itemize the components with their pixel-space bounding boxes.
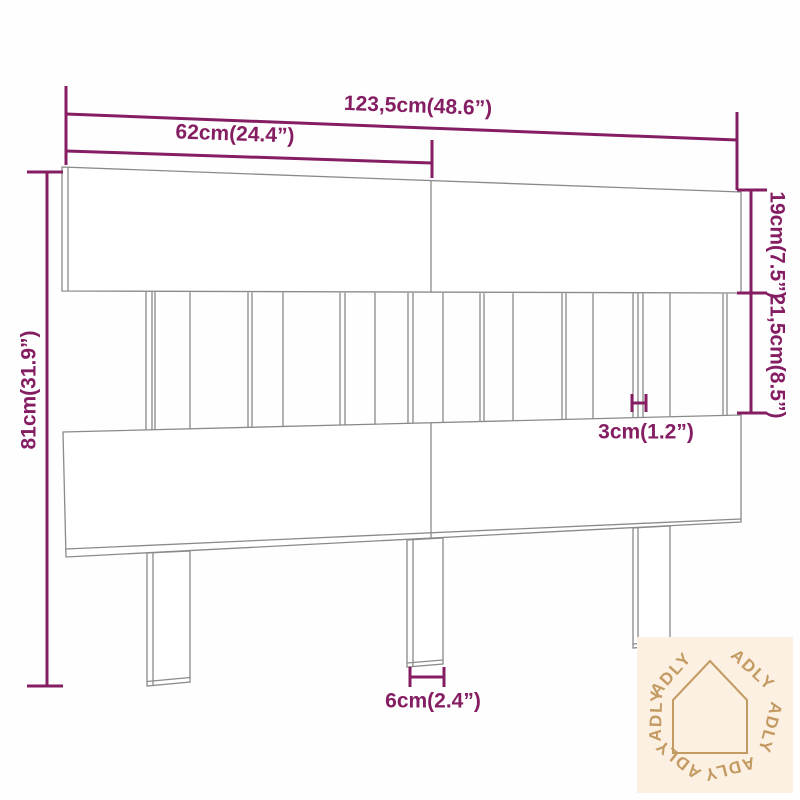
dimension-leg-width <box>410 667 444 687</box>
label-total-height: 81cm(31.9”) <box>19 330 40 449</box>
label-leg-width: 6cm(2.4”) <box>385 691 481 712</box>
headboard-dimension-diagram: 123,5cm(48.6”) 62cm(24.4”) 81cm(31.9”) 1… <box>0 0 800 800</box>
dimension-slat-width <box>632 394 646 412</box>
label-middle-section-height: 21,5cm(8.5”) <box>767 294 788 419</box>
headboard-line-drawing <box>0 0 800 800</box>
label-top-board-height: 19cm(7.5”) <box>767 191 788 298</box>
label-upper-section-width: 62cm(24.4”) <box>175 121 295 146</box>
leg-middle <box>407 538 443 667</box>
label-total-width: 123,5cm(48.6”) <box>344 93 493 119</box>
leg-left <box>147 551 190 686</box>
slats <box>146 292 727 430</box>
leg-right <box>633 526 670 648</box>
label-slat-width: 3cm(1.2”) <box>598 422 694 443</box>
watermark-text: ADLY <box>647 688 666 741</box>
top-rail <box>62 167 741 293</box>
